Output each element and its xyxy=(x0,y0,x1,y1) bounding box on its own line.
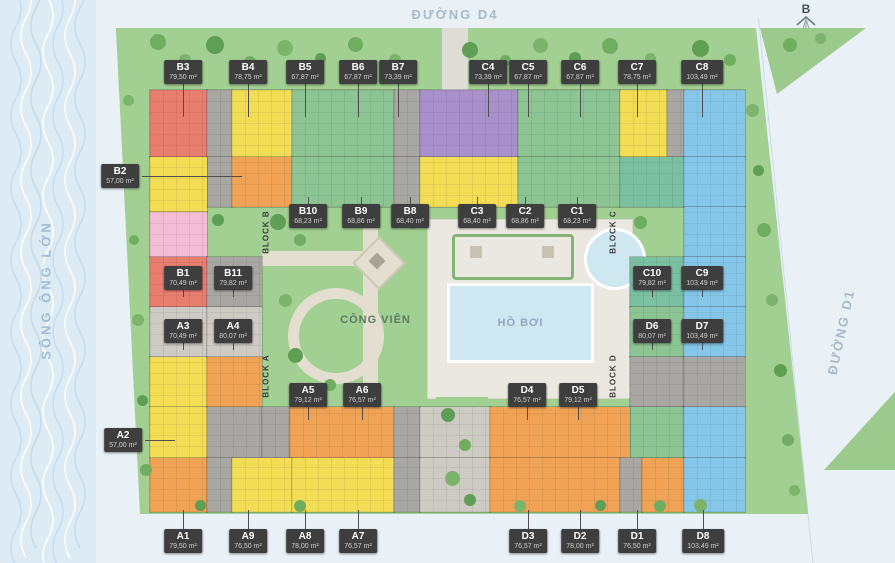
unit-area: 79,50 m² xyxy=(169,543,197,550)
unit-badge-A6[interactable]: A676,57 m² xyxy=(343,383,381,407)
leader-line xyxy=(183,83,184,117)
leader-line xyxy=(578,406,579,420)
unit-badge-B3[interactable]: B379,50 m² xyxy=(164,60,202,84)
unit-badge-B10[interactable]: B1068,23 m² xyxy=(289,204,327,228)
unit-code: D1 xyxy=(623,532,651,542)
unit-area: 79,82 m² xyxy=(638,280,666,287)
unit-badge-D5[interactable]: D579,12 m² xyxy=(559,383,597,407)
unit-badge-A1[interactable]: A179,50 m² xyxy=(164,529,202,553)
leader-line xyxy=(398,83,399,117)
unit-area: 67,87 m² xyxy=(291,74,319,81)
unit-badge-B9[interactable]: B968,86 m² xyxy=(342,204,380,228)
leader-line xyxy=(703,510,704,530)
unit-area: 103,49 m² xyxy=(686,333,718,340)
unit-area: 68,40 m² xyxy=(463,218,491,225)
leader-line xyxy=(637,83,638,117)
unit-code: D3 xyxy=(514,532,542,542)
unit-badge-B11[interactable]: B1179,82 m² xyxy=(214,266,252,290)
unit-code: C5 xyxy=(514,63,542,73)
unit-badge-D4[interactable]: D476,57 m² xyxy=(508,383,546,407)
unit-area: 78,00 m² xyxy=(566,543,594,550)
unit-badges-layer: B379,50 m²B478,75 m²B567,87 m²B667,87 m²… xyxy=(0,0,895,563)
unit-badge-C5[interactable]: C567,87 m² xyxy=(509,60,547,84)
unit-badge-A9[interactable]: A976,50 m² xyxy=(229,529,267,553)
unit-area: 79,12 m² xyxy=(564,397,592,404)
unit-code: A3 xyxy=(169,322,197,332)
unit-badge-A3[interactable]: A370,49 m² xyxy=(164,319,202,343)
unit-code: C1 xyxy=(563,207,591,217)
unit-code: D8 xyxy=(687,532,719,542)
unit-area: 80,07 m² xyxy=(219,333,247,340)
unit-code: B11 xyxy=(219,269,247,279)
unit-area: 73,39 m² xyxy=(474,74,502,81)
unit-area: 76,57 m² xyxy=(513,397,541,404)
unit-area: 73,39 m² xyxy=(384,74,412,81)
leader-line xyxy=(637,510,638,530)
leader-line xyxy=(488,83,489,117)
unit-badge-C7[interactable]: C778,75 m² xyxy=(618,60,656,84)
unit-badge-B5[interactable]: B567,87 m² xyxy=(286,60,324,84)
unit-badge-C10[interactable]: C1079,82 m² xyxy=(633,266,671,290)
leader-line xyxy=(305,510,306,530)
unit-badge-C8[interactable]: C8103,49 m² xyxy=(681,60,723,84)
unit-code: C3 xyxy=(463,207,491,217)
unit-area: 76,57 m² xyxy=(514,543,542,550)
unit-area: 103,49 m² xyxy=(686,280,718,287)
unit-code: D6 xyxy=(638,322,666,332)
unit-badge-C4[interactable]: C473,39 m² xyxy=(469,60,507,84)
leader-line xyxy=(183,342,184,350)
unit-code: B10 xyxy=(294,207,322,217)
unit-code: D4 xyxy=(513,386,541,396)
unit-code: D5 xyxy=(564,386,592,396)
unit-code: D7 xyxy=(686,322,718,332)
unit-badge-D1[interactable]: D176,50 m² xyxy=(618,529,656,553)
leader-line xyxy=(652,342,653,350)
leader-line xyxy=(528,83,529,117)
leader-line xyxy=(652,289,653,297)
unit-area: 78,75 m² xyxy=(623,74,651,81)
leader-line xyxy=(233,289,234,297)
unit-area: 68,23 m² xyxy=(294,218,322,225)
unit-code: C9 xyxy=(686,269,718,279)
leader-line xyxy=(358,83,359,117)
unit-badge-A2[interactable]: A257,00 m² xyxy=(104,428,142,452)
block-d-label: BLOCK D xyxy=(609,354,618,397)
unit-badge-B6[interactable]: B667,87 m² xyxy=(339,60,377,84)
unit-badge-D7[interactable]: D7103,49 m² xyxy=(681,319,723,343)
unit-code: A9 xyxy=(234,532,262,542)
unit-area: 70,49 m² xyxy=(169,280,197,287)
unit-area: 79,82 m² xyxy=(219,280,247,287)
unit-area: 78,75 m² xyxy=(234,74,262,81)
unit-badge-B4[interactable]: B478,75 m² xyxy=(229,60,267,84)
unit-badge-C6[interactable]: C667,87 m² xyxy=(561,60,599,84)
unit-area: 103,49 m² xyxy=(687,543,719,550)
unit-area: 80,07 m² xyxy=(638,333,666,340)
unit-code: C2 xyxy=(511,207,539,217)
unit-area: 57,00 m² xyxy=(109,442,137,449)
leader-line xyxy=(702,342,703,350)
unit-area: 68,23 m² xyxy=(563,218,591,225)
leader-line xyxy=(183,510,184,530)
leader-line xyxy=(580,510,581,530)
block-c-label: BLOCK C xyxy=(609,210,618,253)
unit-code: A1 xyxy=(169,532,197,542)
unit-badge-A4[interactable]: A480,07 m² xyxy=(214,319,252,343)
leader-line xyxy=(183,289,184,297)
leader-line xyxy=(358,510,359,530)
unit-area: 76,50 m² xyxy=(234,543,262,550)
unit-area: 76,57 m² xyxy=(344,543,372,550)
unit-area: 70,49 m² xyxy=(169,333,197,340)
unit-code: B5 xyxy=(291,63,319,73)
unit-code: C6 xyxy=(566,63,594,73)
leader-line xyxy=(702,83,703,117)
unit-code: B4 xyxy=(234,63,262,73)
unit-badge-B1[interactable]: B170,49 m² xyxy=(164,266,202,290)
unit-badge-A8[interactable]: A878,00 m² xyxy=(286,529,324,553)
unit-area: 76,57 m² xyxy=(348,397,376,404)
unit-area: 68,40 m² xyxy=(396,218,424,225)
leader-line xyxy=(248,510,249,530)
unit-badge-D8[interactable]: D8103,49 m² xyxy=(682,529,724,553)
unit-code: C4 xyxy=(474,63,502,73)
unit-code: B1 xyxy=(169,269,197,279)
leader-line xyxy=(580,83,581,117)
unit-badge-C1[interactable]: C168,23 m² xyxy=(558,204,596,228)
unit-area: 67,87 m² xyxy=(344,74,372,81)
unit-badge-A5[interactable]: A579,12 m² xyxy=(289,383,327,407)
leader-line xyxy=(305,83,306,117)
leader-line xyxy=(308,406,309,420)
unit-area: 68,86 m² xyxy=(511,218,539,225)
unit-badge-B2[interactable]: B257,00 m² xyxy=(101,164,139,188)
unit-badge-C9[interactable]: C9103,49 m² xyxy=(681,266,723,290)
unit-code: B9 xyxy=(347,207,375,217)
leader-line xyxy=(145,440,175,441)
unit-code: C8 xyxy=(686,63,718,73)
unit-area: 79,12 m² xyxy=(294,397,322,404)
unit-code: A2 xyxy=(109,431,137,441)
unit-area: 78,00 m² xyxy=(291,543,319,550)
block-b-label: BLOCK B xyxy=(262,210,271,253)
block-a-label: BLOCK A xyxy=(262,354,271,397)
unit-code: A6 xyxy=(348,386,376,396)
unit-code: C7 xyxy=(623,63,651,73)
unit-code: A4 xyxy=(219,322,247,332)
unit-code: A5 xyxy=(294,386,322,396)
unit-code: A8 xyxy=(291,532,319,542)
unit-area: 67,87 m² xyxy=(514,74,542,81)
unit-badge-D2[interactable]: D278,00 m² xyxy=(561,529,599,553)
unit-code: D2 xyxy=(566,532,594,542)
unit-badge-A7[interactable]: A776,57 m² xyxy=(339,529,377,553)
unit-badge-D6[interactable]: D680,07 m² xyxy=(633,319,671,343)
unit-code: B6 xyxy=(344,63,372,73)
unit-code: A7 xyxy=(344,532,372,542)
unit-badge-C2[interactable]: C268,86 m² xyxy=(506,204,544,228)
unit-badge-B8[interactable]: B868,40 m² xyxy=(391,204,429,228)
unit-code: B2 xyxy=(106,167,134,177)
leader-line xyxy=(528,510,529,530)
unit-code: C10 xyxy=(638,269,666,279)
leader-line xyxy=(702,289,703,297)
leader-line xyxy=(527,406,528,420)
unit-area: 68,86 m² xyxy=(347,218,375,225)
unit-area: 76,50 m² xyxy=(623,543,651,550)
leader-line xyxy=(142,176,242,177)
unit-code: B7 xyxy=(384,63,412,73)
unit-area: 67,87 m² xyxy=(566,74,594,81)
unit-area: 103,49 m² xyxy=(686,74,718,81)
unit-area: 57,00 m² xyxy=(106,178,134,185)
unit-badge-D3[interactable]: D376,57 m² xyxy=(509,529,547,553)
unit-code: B3 xyxy=(169,63,197,73)
unit-area: 79,50 m² xyxy=(169,74,197,81)
unit-code: B8 xyxy=(396,207,424,217)
site-plan: SÔNG ÔNG LỚN ĐƯỜNG D4 ĐƯỜNG D1 B xyxy=(0,0,895,563)
unit-badge-B7[interactable]: B773,39 m² xyxy=(379,60,417,84)
unit-badge-C3[interactable]: C368,40 m² xyxy=(458,204,496,228)
leader-line xyxy=(248,83,249,117)
leader-line xyxy=(362,406,363,420)
leader-line xyxy=(233,342,234,350)
